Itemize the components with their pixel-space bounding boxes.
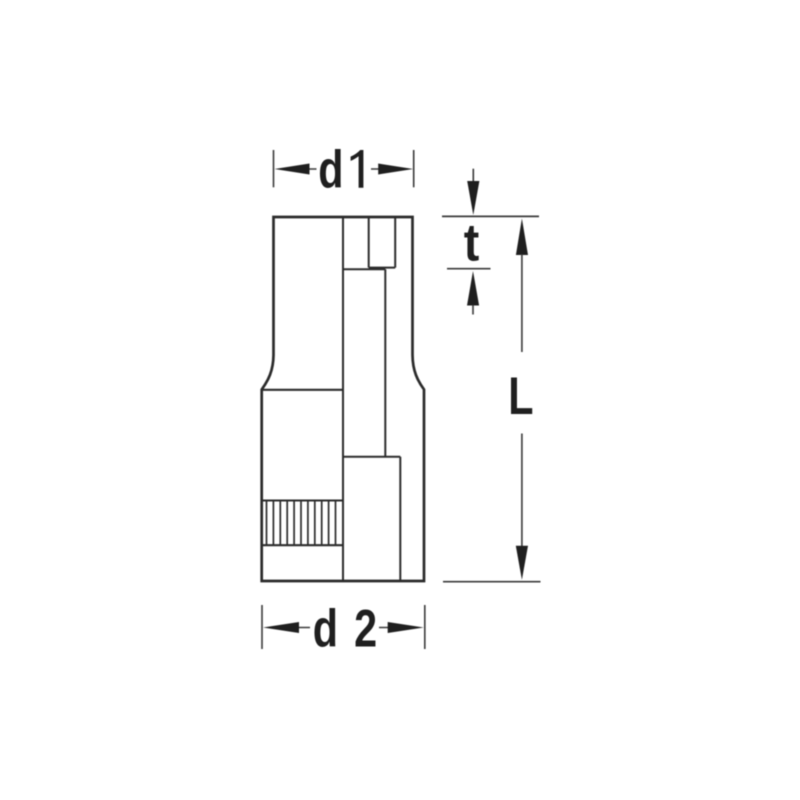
svg-text:L: L: [508, 367, 533, 426]
svg-text:d 2: d 2: [313, 599, 380, 658]
svg-text:d: d: [318, 141, 343, 200]
svg-text:t: t: [464, 213, 480, 272]
